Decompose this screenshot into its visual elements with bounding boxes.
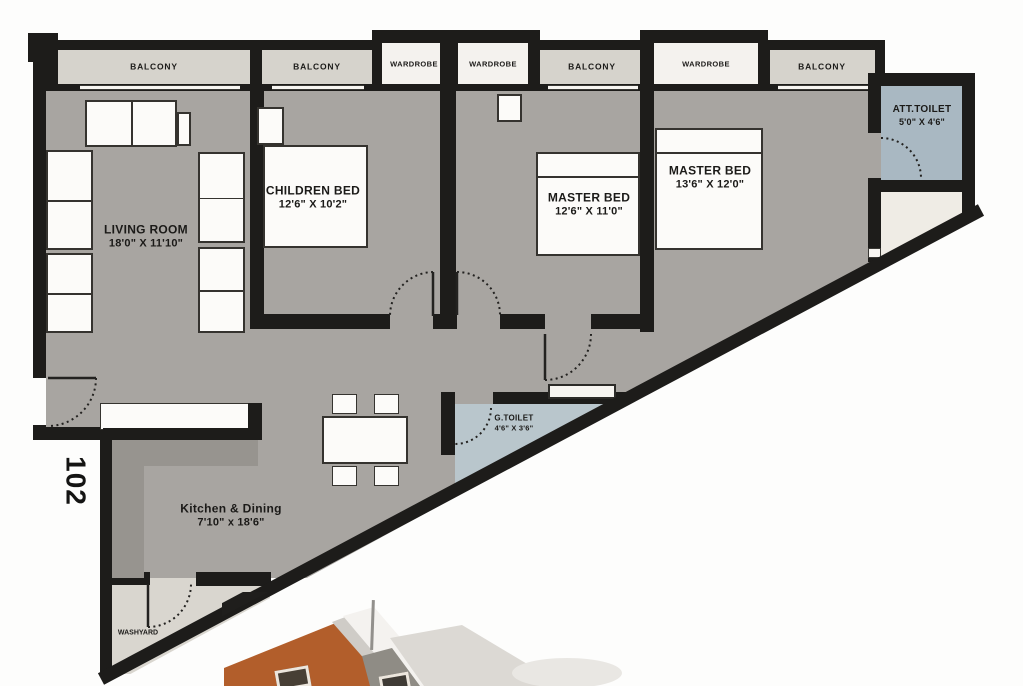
room-dims: 12'6" X 11'0" [548, 206, 630, 220]
washyard-left-wall [100, 437, 112, 675]
washyard-label: WASHYARD [118, 630, 158, 639]
left-outer-wall [33, 40, 46, 378]
building-photo-fragment [222, 592, 700, 686]
room-name: MASTER BED [669, 164, 751, 179]
g-toilet-label: G.TOILET 4'6" X 3'6" [494, 413, 533, 432]
balcony-1-label: BALCONY [130, 62, 178, 73]
att-toilet-bottom-wall [868, 180, 970, 192]
att-toilet-door-gap [868, 133, 881, 178]
floor-plan: BALCONY BALCONY BALCONY BALCONY WARDROBE… [0, 0, 1023, 686]
sofa-left-2 [46, 253, 93, 333]
balcony-3-window [548, 85, 638, 90]
toilet-lower-deck [880, 192, 968, 256]
children-master1-wall [440, 43, 456, 318]
master1-bottom-wall [500, 314, 545, 329]
master2-right-window [868, 248, 881, 258]
unit-number-label: 102 [59, 456, 94, 506]
room-name: Kitchen & Dining [180, 502, 281, 517]
children-bedside-table [257, 107, 284, 145]
wardrobe-2-label: WARDROBE [469, 59, 517, 68]
wardrobe-3-label: WARDROBE [682, 59, 730, 68]
room-dims: 4'6" X 3'6" [494, 423, 533, 432]
room-dims: 5'0" X 4'6" [893, 117, 952, 128]
att-toilet-right-wall [962, 73, 975, 215]
sofa-left-1 [46, 150, 93, 250]
g-toilet-floor [455, 404, 620, 490]
entry-step-wall [33, 427, 105, 440]
room-dims: 18'0" X 11'10" [104, 238, 188, 252]
sofa-cushion-line [199, 290, 244, 292]
room-name: CHILDREN BED [266, 184, 360, 199]
bed-pillow-line [656, 152, 762, 154]
master1-bedside-table [497, 94, 522, 122]
room-name: LIVING ROOM [104, 223, 188, 238]
washyard-top-wall-right [196, 572, 271, 586]
dining-chair-3 [332, 466, 357, 486]
balcony-3-label: BALCONY [568, 62, 616, 73]
balcony-4-window [778, 85, 868, 90]
sofa-right-2 [198, 247, 245, 333]
room-name: G.TOILET [494, 413, 533, 423]
dining-chair-4 [374, 466, 399, 486]
children-bed-label: CHILDREN BED 12'6" X 10'2" [266, 184, 360, 213]
balcony-4-label: BALCONY [798, 62, 846, 73]
room-name: ATT.TOILET [893, 104, 952, 117]
gtoilet-window-sill [548, 384, 616, 399]
kitchen-platform-wall [103, 428, 262, 440]
balcony-2-window [272, 85, 364, 90]
sofa-cushion-line [47, 293, 92, 295]
kitchen-dining-label: Kitchen & Dining 7'10" x 18'6" [180, 502, 281, 531]
dining-chair-1 [332, 394, 357, 414]
photo-wall-sliver [222, 592, 274, 617]
dining-chair-2 [374, 394, 399, 414]
gtoilet-left-wall [441, 392, 455, 455]
sofa-right-1 [198, 152, 245, 243]
kitchen-counter-horizontal [112, 440, 258, 466]
balcony-1-window [80, 85, 240, 90]
living-room-label: LIVING ROOM 18'0" X 11'10" [104, 223, 188, 252]
divider-base-wall [433, 314, 457, 329]
master2-bottom-wall [591, 314, 653, 329]
master1-master2-wall [640, 30, 654, 332]
room-dims: 13'6" X 12'0" [669, 179, 751, 193]
master-bed-2-label: MASTER BED 13'6" X 12'0" [669, 164, 751, 193]
sofa-top-arm [177, 112, 191, 146]
bed-pillow-line [537, 176, 639, 178]
master-bed-1-label: MASTER BED 12'6" X 11'0" [548, 191, 630, 220]
kitchen-platform [100, 403, 258, 430]
att-toilet-floor [881, 86, 962, 180]
room-name: MASTER BED [548, 191, 630, 206]
photo-faint-wall [512, 658, 622, 686]
room-dims: 12'6" X 10'2" [266, 199, 360, 213]
att-toilet-label: ATT.TOILET 5'0" X 4'6" [893, 104, 952, 128]
kitchen-platform-cap [248, 403, 262, 440]
sofa-cushion-line [131, 101, 133, 146]
att-toilet-top-wall [875, 73, 975, 86]
sofa-cushion-line [199, 198, 244, 200]
balcony-2-label: BALCONY [293, 62, 341, 73]
sofa-cushion-line [47, 200, 92, 202]
dining-table [322, 416, 408, 464]
children-bottom-wall [262, 314, 390, 329]
sofa-top [85, 100, 177, 147]
room-dims: 7'10" x 18'6" [180, 517, 281, 531]
wardrobe-1-label: WARDROBE [390, 59, 438, 68]
